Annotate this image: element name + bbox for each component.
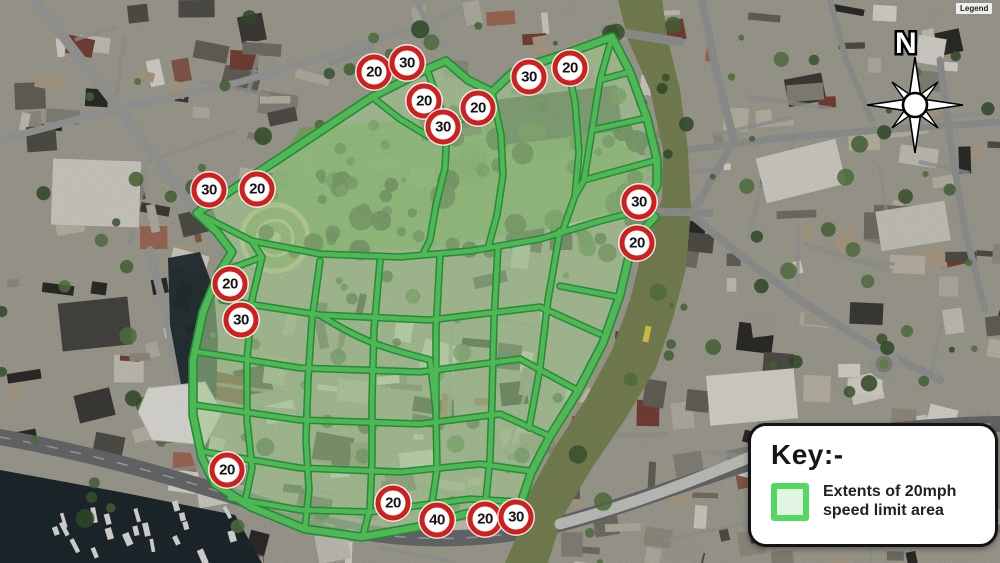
- map-canvas: 203020302030203020302020302020402030 N L…: [0, 0, 1000, 563]
- speed-limit-sign-40: 40: [420, 503, 455, 538]
- key-item: Extents of 20mph speed limit area: [771, 483, 979, 521]
- key-panel: Key:- Extents of 20mph speed limit area: [748, 423, 998, 547]
- speed-limit-sign-30: 30: [512, 60, 547, 95]
- speed-limit-sign-30: 30: [390, 46, 425, 81]
- speed-limit-sign-20: 20: [553, 51, 588, 86]
- speed-limit-sign-20: 20: [468, 502, 503, 537]
- speed-limit-sign-30: 30: [224, 303, 259, 338]
- compass-north-label: N: [895, 27, 917, 60]
- speed-limit-sign-20: 20: [210, 453, 245, 488]
- key-title: Key:-: [771, 439, 979, 471]
- speed-limit-sign-30: 30: [622, 185, 657, 220]
- speed-limit-sign-20: 20: [376, 486, 411, 521]
- speed-limit-sign-20: 20: [620, 226, 655, 261]
- key-item-label: Extents of 20mph speed limit area: [823, 483, 979, 521]
- speed-limit-sign-20: 20: [240, 172, 275, 207]
- zone-extent-swatch-icon: [771, 483, 809, 521]
- legend-chip-button[interactable]: Legend: [955, 2, 993, 15]
- speed-limit-sign-20: 20: [461, 91, 496, 126]
- speed-limit-sign-20: 20: [213, 267, 248, 302]
- compass-rose: N: [845, 15, 990, 200]
- speed-limit-sign-30: 30: [426, 110, 461, 145]
- speed-limit-sign-30: 30: [192, 173, 227, 208]
- compass-hub: [903, 93, 927, 117]
- speed-limit-sign-30: 30: [499, 500, 534, 535]
- speed-limit-sign-20: 20: [357, 55, 392, 90]
